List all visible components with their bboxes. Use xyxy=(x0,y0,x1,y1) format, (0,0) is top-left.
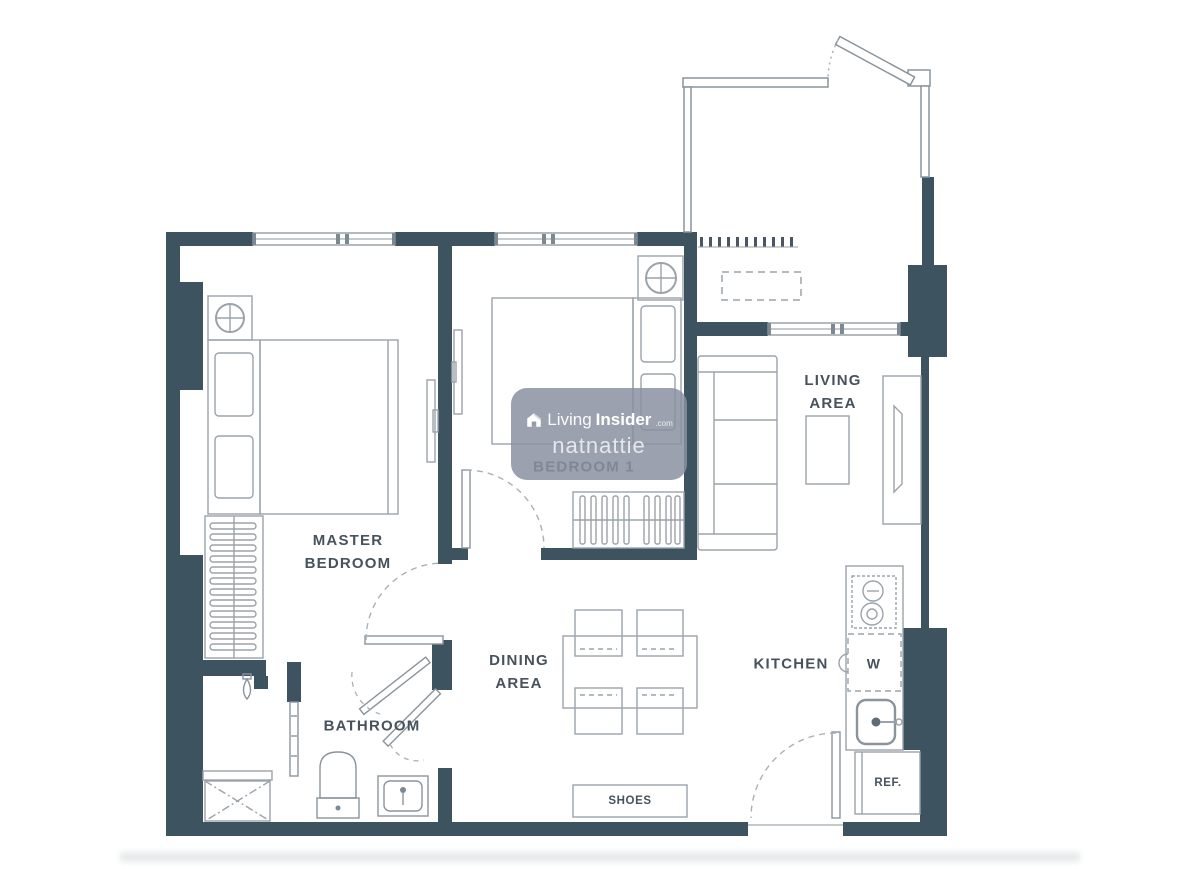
label-washer: W xyxy=(867,653,881,676)
watermark-brand-prefix: Living xyxy=(547,410,591,430)
label-refrigerator: REF. xyxy=(874,777,901,789)
label-living-area: LIVING AREA xyxy=(804,369,861,415)
balcony-door-arc xyxy=(828,40,838,80)
label-master-line1: MASTER xyxy=(305,529,392,552)
label-living-line2: AREA xyxy=(804,392,861,415)
watermark-username: natnattie xyxy=(552,433,645,459)
label-dining-line1: DINING xyxy=(489,649,549,672)
wall-right-thin-mid xyxy=(921,357,929,628)
floorplan-page: MASTER BEDROOM BEDROOM 1 LIVING AREA DIN… xyxy=(0,0,1200,869)
tv-icon xyxy=(894,406,902,492)
door-bathroom-panels xyxy=(352,657,441,761)
bathroom-fixtures xyxy=(203,674,428,821)
wall-bathroom-right-lower xyxy=(438,768,452,836)
wall-right-thin-balcony xyxy=(922,177,934,265)
dining-table xyxy=(563,636,697,708)
master-tv xyxy=(427,380,438,462)
sofa xyxy=(698,356,777,550)
wall-living-top-1 xyxy=(691,322,768,336)
shower-head-icon xyxy=(243,674,251,699)
balcony-wall-left xyxy=(684,87,691,232)
label-dining-line2: AREA xyxy=(489,672,549,695)
wall-bedroom1-right xyxy=(684,232,697,560)
label-living-line1: LIVING xyxy=(804,369,861,392)
wall-right-pier-kitchen xyxy=(903,628,947,750)
watermark-badge: LivingInsider .com natnattie xyxy=(511,388,687,480)
hanging-rails xyxy=(210,523,256,650)
burner xyxy=(861,603,883,625)
walls xyxy=(166,177,947,836)
tv-console xyxy=(883,376,921,524)
master-nightstand xyxy=(208,296,252,340)
wall-bedroom1-bottom xyxy=(541,548,697,560)
doors xyxy=(352,470,843,825)
house-icon xyxy=(525,411,543,429)
dining-chair xyxy=(637,610,683,656)
stove xyxy=(852,576,896,628)
label-dining-area: DINING AREA xyxy=(489,649,549,695)
shower-tray xyxy=(203,771,272,821)
pillow xyxy=(641,306,675,362)
balcony-drying-rack xyxy=(698,237,798,247)
wall-left-wide xyxy=(166,555,203,836)
wall-right-pier-living xyxy=(908,265,947,357)
watermark-brand-suffix: Insider xyxy=(596,410,652,430)
door-master-bedroom xyxy=(365,563,443,644)
label-kitchen: KITCHEN xyxy=(753,653,828,676)
dining-chair xyxy=(575,688,622,734)
coffee-table xyxy=(806,416,849,484)
wall-bedroom1-door-jamb xyxy=(438,548,468,560)
dining-furniture xyxy=(563,610,697,817)
dining-chair xyxy=(575,610,622,656)
dining-chair xyxy=(637,688,683,734)
wall-bedroom-divider xyxy=(438,232,452,564)
door-bedroom1 xyxy=(462,470,544,548)
wall-bathroom-top-stub xyxy=(254,676,268,689)
balcony-door-leaf xyxy=(836,36,915,84)
label-shoes: SHOES xyxy=(608,795,651,807)
balcony-wall-top xyxy=(683,78,828,87)
bathroom-sink xyxy=(378,776,428,816)
balcony xyxy=(683,36,930,300)
label-master-line2: BEDROOM xyxy=(305,552,392,575)
wall-bathroom-top xyxy=(203,660,266,676)
faucet-icon xyxy=(400,787,406,793)
door-entrance xyxy=(748,732,843,825)
wall-living-top-2 xyxy=(900,322,910,336)
pillow xyxy=(215,353,253,416)
windows xyxy=(253,233,900,335)
toilet xyxy=(317,752,359,818)
label-master-bedroom: MASTER BEDROOM xyxy=(305,529,392,575)
balcony-ac-unit xyxy=(722,272,801,300)
master-wardrobe xyxy=(205,516,263,658)
bedroom1-wardrobe xyxy=(573,492,684,548)
master-bedroom-furniture xyxy=(205,296,438,658)
watermark-brand: LivingInsider .com xyxy=(525,410,673,430)
wall-master-door-jamb xyxy=(432,640,452,690)
wall-shower-divider-top xyxy=(287,662,301,702)
wall-bottom-left xyxy=(166,822,748,836)
window-bedroom1 xyxy=(495,233,637,245)
window-living xyxy=(768,323,900,335)
wall-left-pier xyxy=(166,282,203,390)
faucet-icon xyxy=(872,718,881,727)
label-bathroom: BATHROOM xyxy=(324,715,421,738)
bedroom1-nightstand xyxy=(638,256,683,300)
window-master xyxy=(253,233,395,245)
master-bed xyxy=(208,340,398,514)
bedroom1-tv xyxy=(452,330,462,414)
kitchen-sink xyxy=(857,700,902,744)
wall-left-thin xyxy=(166,232,180,558)
scan-artifact xyxy=(120,852,1080,862)
watermark-brand-tld: .com xyxy=(655,419,672,428)
wall-right-corner xyxy=(920,748,947,836)
pillow xyxy=(215,436,253,498)
glass-divider xyxy=(290,702,298,776)
balcony-wall-right xyxy=(921,86,929,177)
